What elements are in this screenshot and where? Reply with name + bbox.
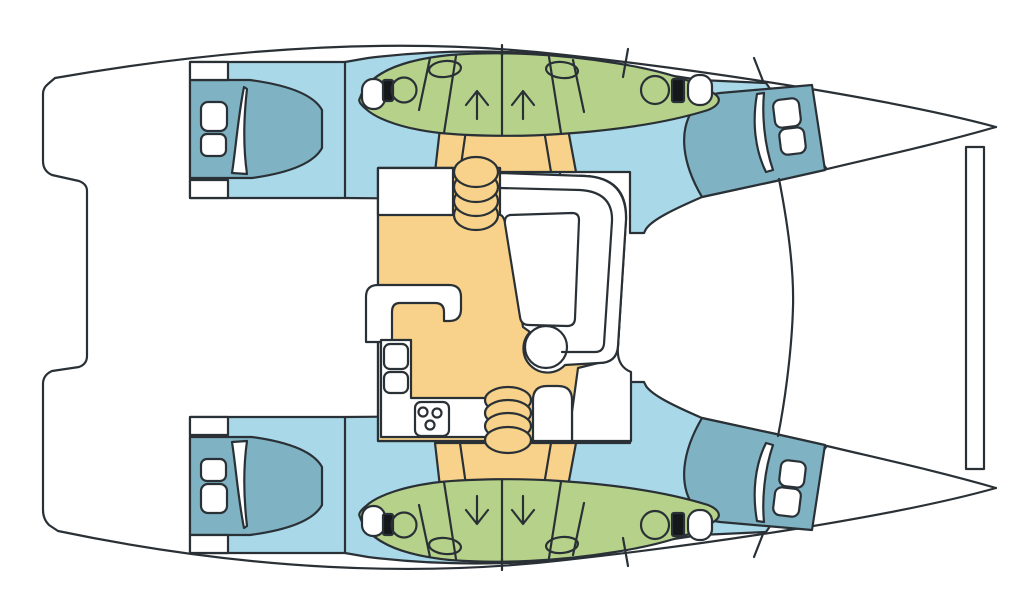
companionway-steps-top	[454, 157, 498, 230]
galley-sink	[384, 372, 408, 393]
companionway-steps-bottom	[485, 387, 531, 453]
deck-plan-svg	[0, 0, 1024, 615]
dinette-end-seat	[525, 326, 567, 368]
galley-top-cabinet	[378, 168, 453, 215]
step	[485, 427, 531, 453]
coachroof-front-edge	[778, 179, 793, 436]
stove-icon	[415, 402, 449, 436]
plan-linework	[43, 45, 996, 570]
entry-pillar	[533, 386, 572, 441]
catamaran-deck-plan	[0, 0, 1024, 615]
salon	[366, 157, 631, 453]
step	[454, 157, 498, 187]
galley-sink	[384, 344, 408, 369]
forward-crossbeam	[966, 147, 984, 469]
